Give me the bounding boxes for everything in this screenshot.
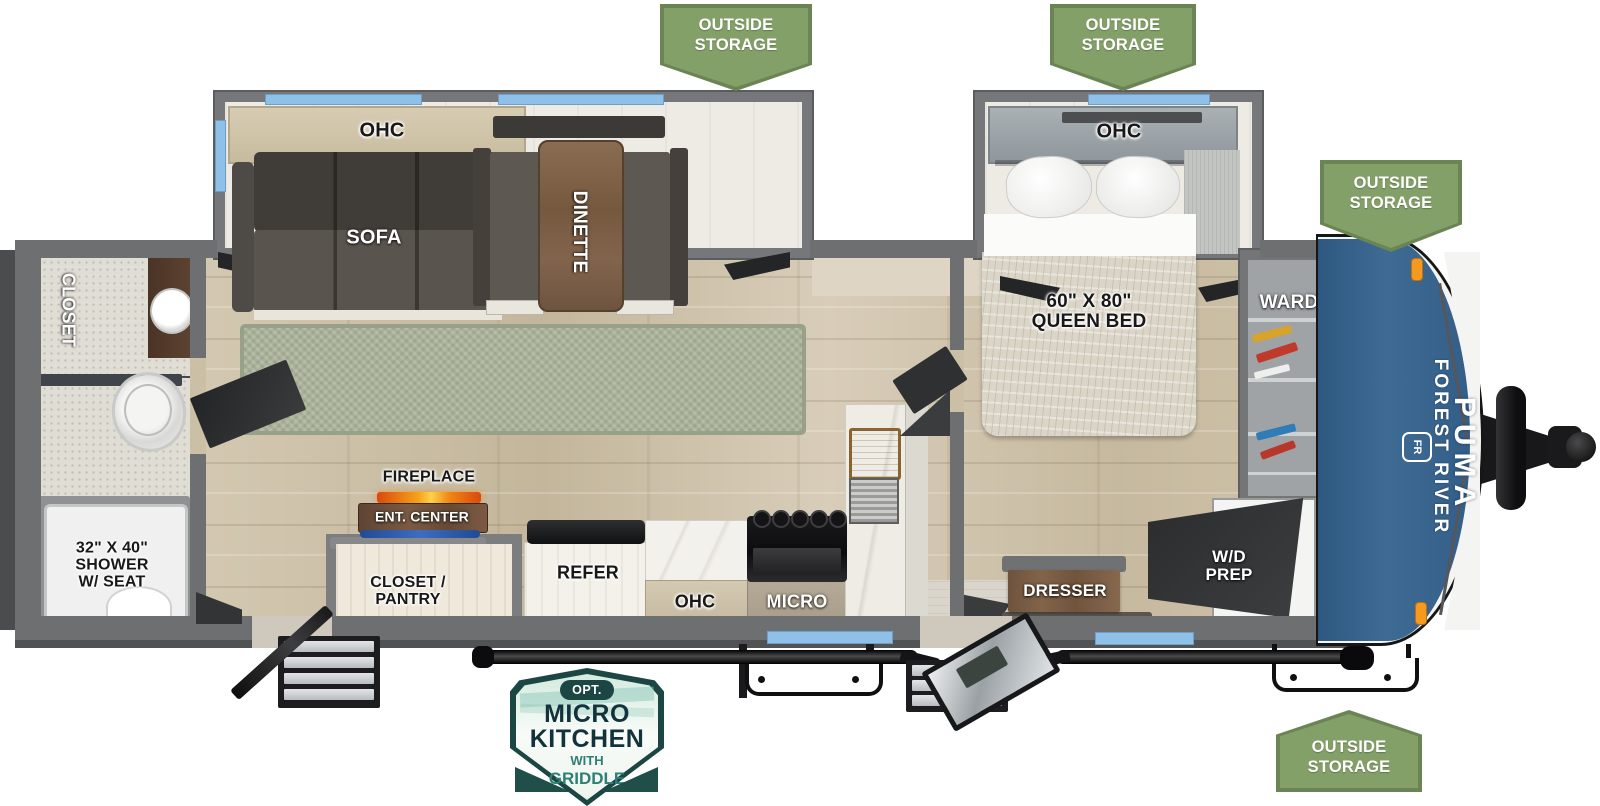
dinette-label: DINETTE bbox=[569, 191, 589, 274]
shower-line2: SHOWER bbox=[47, 558, 177, 575]
stove-burner-2 bbox=[772, 510, 790, 528]
dinette-bench-right-back bbox=[670, 148, 688, 306]
dinette-base-left bbox=[486, 300, 544, 315]
cutting-board bbox=[849, 428, 901, 480]
banner-label: OUTSIDE STORAGE bbox=[684, 16, 788, 56]
hitch-jack bbox=[1496, 386, 1526, 510]
outside-storage-banner-front-side: OUTSIDE STORAGE bbox=[1320, 160, 1462, 252]
outside-storage-banner-bottom-front: OUTSIDE STORAGE bbox=[1276, 710, 1422, 792]
shower-line3: W/ SEAT bbox=[47, 574, 177, 591]
micro-kitchen-badge: OPT. MICRO KITCHEN WITH GRIDDLE bbox=[510, 668, 664, 806]
hitch-ball bbox=[1566, 432, 1596, 462]
badge-opt-text: OPT. bbox=[572, 683, 602, 697]
shower-label: 32" X 40" SHOWER W/ SEAT bbox=[47, 541, 177, 592]
awning-rod-cap bbox=[472, 646, 494, 668]
dinette-base-right bbox=[616, 300, 674, 315]
fold-down-step-main bbox=[745, 662, 883, 696]
kitchen-counter bbox=[645, 520, 749, 584]
stove-burner-1 bbox=[753, 510, 771, 528]
banner-label: OUTSIDE STORAGE bbox=[1297, 738, 1401, 778]
living-ohc-label: OHC bbox=[359, 120, 404, 141]
step-tread bbox=[284, 673, 374, 684]
banner-label: OUTSIDE STORAGE bbox=[1339, 174, 1443, 214]
dinette-bench-right bbox=[620, 152, 670, 302]
step-tread bbox=[284, 657, 374, 668]
rug bbox=[240, 324, 806, 435]
floorplan: OUTSIDE STORAGE OUTSIDE STORAGE OUTSIDE … bbox=[0, 0, 1600, 806]
kitchen-window bbox=[767, 631, 893, 644]
dinette-valance bbox=[493, 116, 665, 138]
rear-wall bbox=[15, 240, 41, 648]
outside-storage-banner-top-left: OUTSIDE STORAGE bbox=[660, 4, 812, 91]
badge-opt-pill: OPT. bbox=[560, 680, 614, 700]
kitchen-ohc-label: OHC bbox=[675, 592, 716, 611]
toilet-lid-line bbox=[124, 384, 172, 436]
rear-bumper bbox=[0, 250, 16, 630]
step-bolt bbox=[852, 676, 859, 683]
fireplace-band bbox=[377, 492, 481, 503]
sofa-label: SOFA bbox=[346, 227, 401, 248]
dinette-bench-left-back bbox=[473, 148, 491, 306]
kitchen-l-counter-edge bbox=[905, 404, 928, 628]
shower-size: 32" X 40" bbox=[47, 541, 177, 558]
badge-line1: MICRO bbox=[510, 702, 664, 727]
awning-rod-front bbox=[1056, 650, 1354, 664]
top-wall-rear bbox=[15, 240, 217, 258]
stove-burner-4 bbox=[810, 510, 828, 528]
badge-title: MICRO KITCHEN bbox=[510, 702, 664, 752]
step-bolt bbox=[1384, 674, 1391, 681]
griddle bbox=[849, 478, 899, 524]
dresser-label: DRESSER bbox=[1023, 582, 1107, 600]
ent-center-label: ENT. CENTER bbox=[375, 510, 469, 525]
kitchen-bedroom-wall bbox=[950, 252, 964, 624]
bath-closet-label: CLOSET bbox=[58, 273, 77, 347]
refrigerator-lid bbox=[527, 520, 645, 544]
ent-center-blue-band bbox=[360, 530, 480, 538]
wd-prep-line1: W/D bbox=[1194, 548, 1264, 566]
fr-logo: FR bbox=[1402, 432, 1432, 462]
sofa-back bbox=[254, 152, 502, 232]
micro-label: MICRO bbox=[767, 592, 828, 611]
step-bolt bbox=[758, 676, 765, 683]
wd-prep-label: W/D PREP bbox=[1194, 548, 1264, 584]
living-slide-window-1 bbox=[265, 94, 422, 105]
step-bolt bbox=[1290, 674, 1297, 681]
wardrobe-label: WARD bbox=[1260, 293, 1319, 313]
pantry-line2: PANTRY bbox=[353, 592, 463, 609]
awning-rod-rear bbox=[482, 650, 918, 664]
marker-light-bottom bbox=[1415, 602, 1427, 625]
bath-sink bbox=[150, 288, 194, 334]
bedroom-bottom-window bbox=[1095, 632, 1194, 645]
outside-storage-banner-top-right: OUTSIDE STORAGE bbox=[1050, 4, 1196, 91]
refer-label: REFER bbox=[557, 563, 619, 582]
badge-line2: KITCHEN bbox=[510, 727, 664, 752]
step-tread bbox=[284, 689, 374, 700]
bedroom-ohc-label: OHC bbox=[1096, 121, 1141, 142]
badge-line3: WITH bbox=[510, 754, 664, 769]
marker-light-top bbox=[1411, 258, 1423, 281]
living-slide-side-window bbox=[215, 120, 226, 192]
pantry-label: CLOSET / PANTRY bbox=[353, 575, 463, 609]
wd-prep-line2: PREP bbox=[1194, 566, 1264, 584]
queen-bed-label: 60" X 80" QUEEN BED bbox=[1014, 292, 1164, 332]
stove-panel bbox=[753, 548, 841, 574]
sofa-base bbox=[254, 310, 502, 320]
queen-bed-size: 60" X 80" bbox=[1014, 292, 1164, 312]
puma-label: PUMA bbox=[1447, 397, 1481, 513]
bed-sheet bbox=[984, 214, 1196, 256]
sofa-armrest-left bbox=[232, 162, 254, 312]
awning-rod-front-cap bbox=[1340, 646, 1374, 670]
queen-bed-name: QUEEN BED bbox=[1014, 312, 1164, 332]
pillow-right bbox=[1095, 155, 1181, 220]
stove-burner-3 bbox=[791, 510, 809, 528]
pantry-line1: CLOSET / bbox=[353, 575, 463, 592]
banner-label: OUTSIDE STORAGE bbox=[1071, 16, 1175, 56]
living-slide-window-2 bbox=[498, 94, 664, 105]
puma-text: PUMA bbox=[1448, 397, 1481, 513]
stove-burner-5 bbox=[829, 510, 847, 528]
bedroom-slide-window bbox=[1088, 94, 1210, 105]
fireplace-label: FIREPLACE bbox=[383, 470, 475, 487]
dinette-bench-left bbox=[490, 152, 540, 302]
fr-logo-text: FR bbox=[1411, 440, 1423, 455]
